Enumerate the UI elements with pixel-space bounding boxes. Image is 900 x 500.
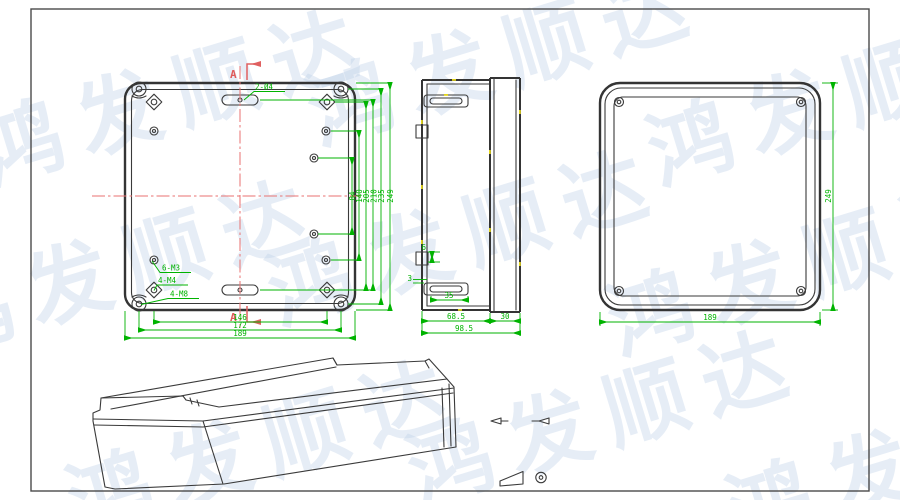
section-label: A: [230, 68, 237, 81]
m8-label: 4-M8: [170, 290, 189, 299]
dim-249: 249: [824, 189, 833, 203]
back-view: 249 189: [600, 83, 838, 326]
dim-30: 30: [500, 312, 510, 321]
dim-35: 35: [444, 291, 453, 300]
isometric-view: [93, 358, 456, 489]
dim-249-chain: 249: [386, 189, 395, 203]
washer-symbol: [536, 472, 546, 482]
side-view: 6 3 35 68.5 30 98.5: [407, 78, 520, 336]
arrow-symbol-right: [532, 418, 549, 424]
side-outline: [422, 78, 520, 312]
dim-68-5: 68.5: [447, 312, 465, 321]
dim-98-5: 98.5: [455, 324, 473, 333]
back-corner-holes: [615, 98, 806, 296]
hole-labels: 2-Ø4 6-M3 4-M4 4-M8: [141, 83, 285, 305]
section-mark-top: A: [230, 64, 260, 81]
dim-235: 235: [377, 189, 386, 203]
cad-drawing: A A 2-Ø4 6-M3 4-M4 4-M8 146: [0, 0, 900, 500]
misc-symbols: [491, 418, 549, 486]
dim-6: 6: [421, 243, 426, 252]
dim-3: 3: [407, 274, 412, 283]
m3-label: 6-M3: [162, 264, 180, 273]
dim-189-back: 189: [703, 313, 717, 322]
slot-label: 2-Ø4: [255, 83, 274, 92]
dim-189: 189: [233, 329, 247, 338]
cone-symbol: [500, 472, 523, 487]
arrow-symbol-left: [491, 418, 508, 424]
grip-marks: [421, 79, 521, 311]
front-view: A A 2-Ø4 6-M3 4-M4 4-M8 146: [92, 64, 395, 340]
front-bottom-dims: 146 172 189: [125, 311, 355, 340]
mounting-ears: [416, 95, 468, 295]
drawing-sheet: 鸿发顺达 鸿发顺达 鸿发顺达 鸿发顺达 鸿发顺达 鸿发顺达 鸿发顺达 鸿发顺达 …: [0, 0, 900, 500]
m4-label: 4-M4: [158, 276, 177, 285]
